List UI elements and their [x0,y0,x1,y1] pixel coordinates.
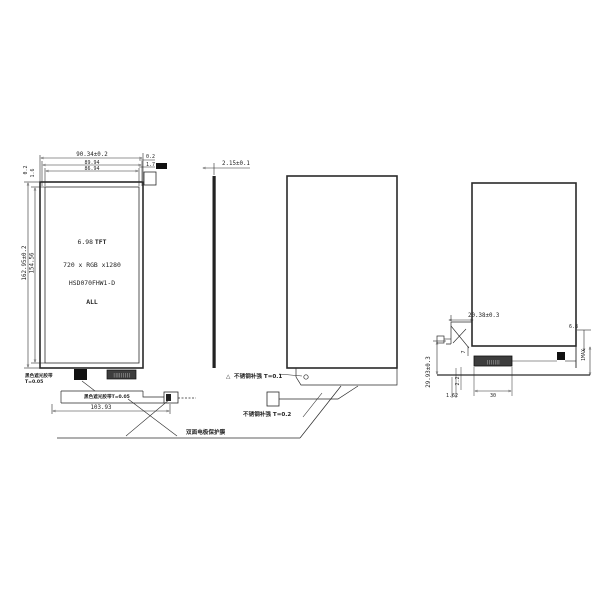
left-note-line2: T=0.05 [25,379,43,385]
pin1-marker [156,163,167,169]
back-view: △ 不锈钢补强 T=0.1 不锈钢补强 T=0.2 [226,176,397,418]
front-view: 90.34±0.2 89.94 86.94 0.2 1.7 0.2 1.6 16… [22,152,196,436]
leader-line [279,374,302,376]
side-view: 2.15±0.1 [203,161,250,368]
right-view: 20.38±0.3 7 ||||||| 29.93±0.3 2.2 1.62 3… [426,183,591,399]
fpc-step-outline [446,322,472,344]
leader-line [128,399,177,436]
dim-width-outer: 90.34±0.2 [76,152,107,158]
stiffener-note-2: 不锈钢补强 T=0.2 [243,410,291,418]
dim-offset-right-1: 0.2 [146,154,155,160]
stiffener-hatch [267,392,279,406]
active-area-outline [45,187,139,363]
fpc-fold-outline [296,368,397,385]
resolution-label: 720 x RGB x1280 [63,261,121,269]
component-block [557,352,565,360]
size-value: 6.98 [78,238,94,246]
drawing-canvas: 90.34±0.2 89.94 86.94 0.2 1.7 0.2 1.6 16… [0,0,600,600]
left-note-line1: 黑色遮光胶带 [25,372,53,379]
connector-pins: ||||||| [486,360,499,365]
dim-connector: 30 [490,393,496,399]
right-outline [472,183,576,346]
dim-height-aa: 154.56 [30,252,36,273]
tft-label: TFT [95,238,107,246]
side-profile-bar [213,176,216,368]
tape-note: 黑色遮光胶带T=0.05 [84,393,130,400]
dim-edge: 6.8 [569,324,578,330]
dim-offset-left-2: 1.6 [30,168,36,177]
dim-width-aa: 86.94 [84,166,99,172]
dim-height-outer: 162.95±0.2 [22,246,28,281]
dim-fpc: 20.38±0.3 [468,313,500,319]
leader-line [126,399,170,436]
dim-fpc-width: 103.93 [91,405,112,411]
dim-thickness: 2.15±0.1 [222,161,250,167]
tape-block [437,336,444,343]
dim-offset-left-1: 0.2 [23,165,29,174]
dim-step: 7 [461,350,467,353]
stiffener-note-1: 不锈钢补强 T=0.1 [234,372,282,380]
flag-symbol: △ [226,374,231,380]
dim-offset: 1.62 [446,393,458,399]
dim-height: 29.93±0.3 [426,356,432,388]
model-label: HSD070FHW1-D [69,279,115,287]
fold-hatch-line [451,326,469,348]
ic-chip [74,369,87,380]
panel-size-label: 6.98TFT [78,238,107,246]
bottom-annotation: 双面电极保护膜 [57,386,341,438]
lcd-outline-drawing: 90.34±0.2 89.94 86.94 0.2 1.7 0.2 1.6 16… [0,0,600,600]
panel-outline [40,182,143,368]
screw-hole [304,375,308,379]
leader-line [300,386,341,438]
leader-line [82,381,95,391]
bottom-note: 双面电极保护膜 [186,428,226,436]
dim-offset-right-2: 1.7 [146,162,155,168]
back-outline [287,176,397,368]
dim-max: 1MAX [581,349,587,361]
connector-pins: ||||||||| [113,373,130,378]
fpc-pad-hatch [144,172,156,185]
all-label: ALL [86,298,98,306]
